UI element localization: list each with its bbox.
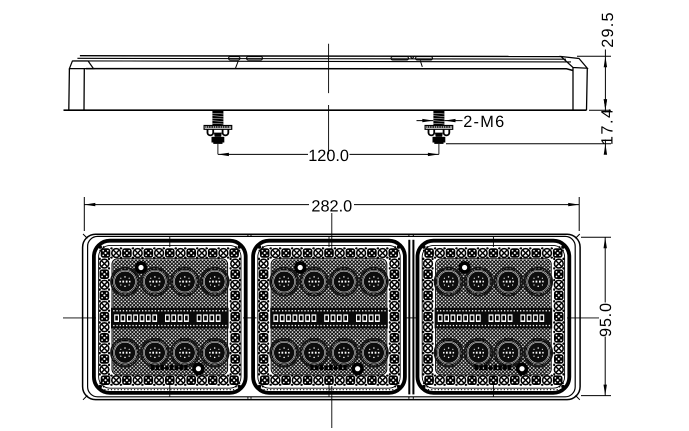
svg-text:29.5: 29.5 — [599, 11, 617, 48]
svg-text:2-M6: 2-M6 — [463, 113, 505, 131]
svg-text:17.4: 17.4 — [599, 107, 617, 145]
svg-text:282.0: 282.0 — [311, 197, 352, 215]
svg-text:95.0: 95.0 — [597, 302, 615, 337]
svg-text:120.0: 120.0 — [308, 147, 349, 165]
